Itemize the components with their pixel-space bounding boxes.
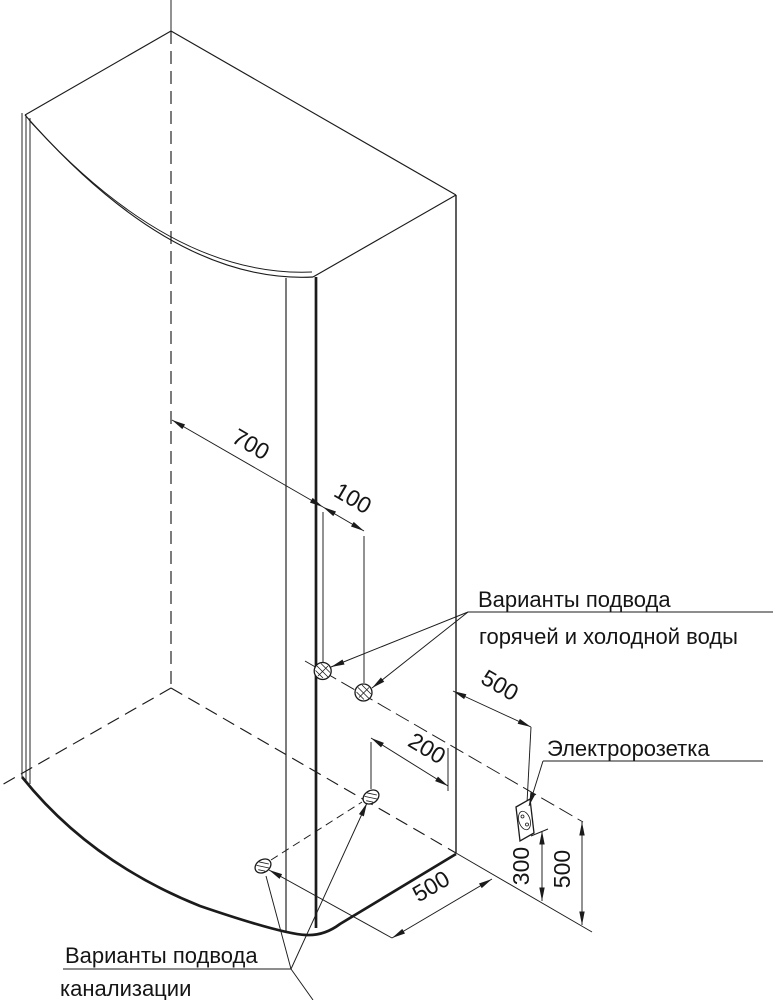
room-corner-lines [0, 0, 592, 932]
top-front-curve-outer [25, 115, 313, 277]
dimension-500-wall-value: 500 [477, 664, 523, 706]
water-connection-point-1 [314, 663, 331, 680]
dimension-700: 700 [172, 420, 323, 507]
dimension-200: 200 [371, 727, 450, 791]
dimension-300-height: 300 [508, 829, 548, 901]
installation-diagram: 700 100 Варианты подвода горячей и х [0, 0, 775, 1000]
water-supply-label-line1: Варианты подвода [478, 587, 671, 612]
drain-callout: Варианты подвода канализации [60, 803, 367, 1000]
electrical-socket [516, 799, 534, 841]
cabin-outline [22, 31, 456, 935]
top-edge-front-right [313, 195, 456, 277]
drain-label-line2: канализации [60, 976, 191, 1000]
diagram-canvas: 700 100 Варианты подвода горячей и х [0, 0, 775, 1000]
top-edge-right [171, 31, 456, 195]
drain-label-line1: Варианты подвода [65, 943, 258, 968]
water-supply-callout: Варианты подвода горячей и холодной воды [331, 587, 773, 688]
socket-label: Электророзетка [547, 736, 710, 761]
drain-connection-point-2 [252, 856, 273, 876]
water-supply-label-line2: горячей и холодной воды [479, 624, 738, 649]
dimension-500-floor: 500 [269, 865, 492, 938]
socket-callout: Электророзетка [529, 736, 763, 806]
dimension-500-floor-value: 500 [408, 865, 454, 907]
dimension-300-value: 300 [508, 847, 534, 885]
water-connection-point-2 [355, 684, 372, 701]
top-edge-left [25, 31, 171, 115]
drain-connection-point-1 [360, 787, 381, 807]
dimension-700-value: 700 [228, 423, 274, 465]
dimension-500-wall: 500 [453, 664, 531, 803]
water-level-line [305, 661, 583, 822]
dimension-100-value: 100 [330, 477, 376, 519]
dimension-500-height-value: 500 [549, 850, 575, 888]
floor-line-right-dashed [171, 688, 456, 853]
base-edge [22, 777, 456, 935]
